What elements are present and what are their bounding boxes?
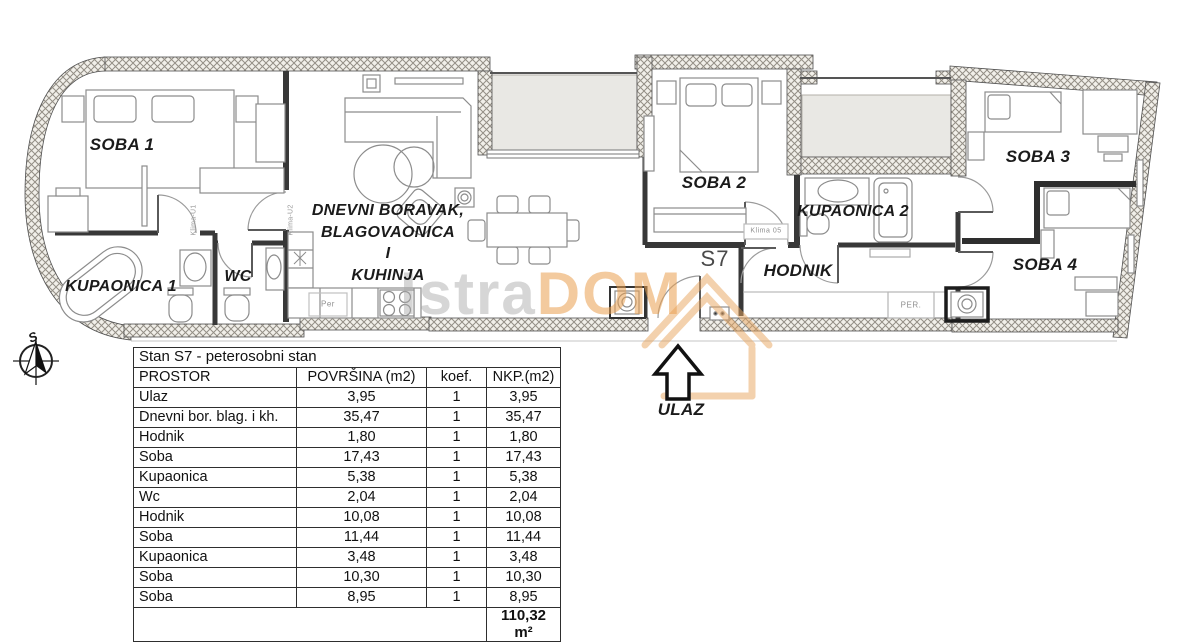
room-label-living-line4: KUHINJA [351,267,424,285]
koef-cell: 1 [427,528,487,548]
stove-icon [380,290,414,316]
nkp-cell: 35,47 [487,408,561,428]
table-header-row: PROSTOR POVRŠINA (m2) koef. NKP.(m2) [134,368,561,388]
prostor-cell: Soba [134,568,297,588]
per-label-hall: PER. [901,301,922,310]
table-title-row: Stan S7 - peterosobni stan [134,348,561,368]
povrsina-cell: 2,04 [297,488,427,508]
room-label-soba1: SOBA 1 [90,135,154,155]
header-nkp: NKP.(m2) [487,368,561,388]
prostor-cell: Hodnik [134,508,297,528]
sink-icon-wc [266,248,284,290]
room-label-wc: WC [224,268,251,286]
povrsina-cell: 3,95 [297,388,427,408]
total-spacer-cell [134,608,487,642]
prostor-cell: Ulaz [134,388,297,408]
povrsina-cell: 17,43 [297,448,427,468]
nkp-cell: 1,80 [487,428,561,448]
povrsina-cell: 10,08 [297,508,427,528]
nkp-cell: 11,44 [487,528,561,548]
povrsina-cell: 3,48 [297,548,427,568]
area-table: Stan S7 - peterosobni stan PROSTOR POVRŠ… [133,347,561,642]
floorplan-page: IstraDOM SOBA 1 KUPAONICA 1 WC DNEVNI BO… [0,0,1200,642]
table-row: Wc2,0412,04 [134,488,561,508]
table-row: Hodnik10,08110,08 [134,508,561,528]
room-label-kupaonica1: KUPAONICA 1 [65,278,177,296]
table-row: Soba11,44111,44 [134,528,561,548]
klima-u1-label: Klima-U1 [191,204,198,235]
table-row: Ulaz3,9513,95 [134,388,561,408]
entrance-arrow-icon [655,346,701,399]
nkp-cell: 5,38 [487,468,561,488]
room-label-kupaonica2: KUPAONICA 2 [797,203,909,221]
koef-cell: 1 [427,468,487,488]
povrsina-cell: 1,80 [297,428,427,448]
prostor-cell: Hodnik [134,428,297,448]
room-label-soba3: SOBA 3 [1006,147,1070,167]
unit-label: S7 [701,246,730,272]
sofa-icon [345,98,471,178]
total-area-cell: 110,32 m² [487,608,561,642]
prostor-cell: Soba [134,588,297,608]
povrsina-cell: 5,38 [297,468,427,488]
table-row: Soba17,43117,43 [134,448,561,468]
prostor-cell: Soba [134,448,297,468]
header-prostor: PROSTOR [134,368,297,388]
sink-icon-kupaonica2 [805,178,869,205]
koef-cell: 1 [427,548,487,568]
room-label-living-line2: BLAGOVAONICA [321,224,455,242]
room-label-soba4: SOBA 4 [1013,255,1077,275]
klima-u2-label: Klima-U2 [288,204,295,235]
koef-cell: 1 [427,488,487,508]
table-row: Kupaonica5,3815,38 [134,468,561,488]
bed-icon-soba2 [644,78,781,232]
dining-table-icon [468,196,579,264]
boiler-icon [610,287,645,318]
washing-machine-icon [946,288,988,321]
room-label-soba2: SOBA 2 [682,173,746,193]
nkp-cell: 10,08 [487,508,561,528]
sink-icon-kupaonica1 [180,250,211,286]
prostor-cell: Dnevni bor. blag. i kh. [134,408,297,428]
room-label-hodnik: HODNIK [764,261,833,281]
sliding-door [487,150,639,158]
per-label-kitchen: Per [321,300,335,309]
table-row: Soba8,9518,95 [134,588,561,608]
towel-rail-icon [870,249,910,257]
koef-cell: 1 [427,588,487,608]
nkp-cell: 2,04 [487,488,561,508]
nkp-cell: 3,95 [487,388,561,408]
prostor-cell: Soba [134,528,297,548]
table-title: Stan S7 - peterosobni stan [134,348,561,368]
table-row: Kupaonica3,4813,48 [134,548,561,568]
header-povrsina: POVRŠINA (m2) [297,368,427,388]
room-label-living-line3: I [386,245,391,263]
koef-cell: 1 [427,388,487,408]
koef-cell: 1 [427,568,487,588]
prostor-cell: Kupaonica [134,468,297,488]
prostor-cell: Kupaonica [134,548,297,568]
toilet-icon-wc [224,288,250,321]
table-row: Hodnik1,8011,80 [134,428,561,448]
room-label-living-line1: DNEVNI BORAVAK, [312,202,464,220]
nkp-cell: 8,95 [487,588,561,608]
table-row: Soba10,30110,30 [134,568,561,588]
prostor-cell: Wc [134,488,297,508]
nkp-cell: 10,30 [487,568,561,588]
koef-cell: 1 [427,428,487,448]
povrsina-cell: 11,44 [297,528,427,548]
header-koef: koef. [427,368,487,388]
koef-cell: 1 [427,408,487,428]
povrsina-cell: 8,95 [297,588,427,608]
tv-shelf-icon [363,75,463,92]
table-row: Dnevni bor. blag. i kh.35,47135,47 [134,408,561,428]
entrance-label: ULAZ [658,400,705,420]
north-arrow-icon [13,338,59,385]
koef-cell: 1 [427,508,487,528]
nkp-cell: 3,48 [487,548,561,568]
klima-05-label: Klima 05 [750,228,781,235]
povrsina-cell: 10,30 [297,568,427,588]
koef-cell: 1 [427,448,487,468]
nkp-cell: 17,43 [487,448,561,468]
povrsina-cell: 35,47 [297,408,427,428]
table-total-row: 110,32 m² [134,608,561,642]
